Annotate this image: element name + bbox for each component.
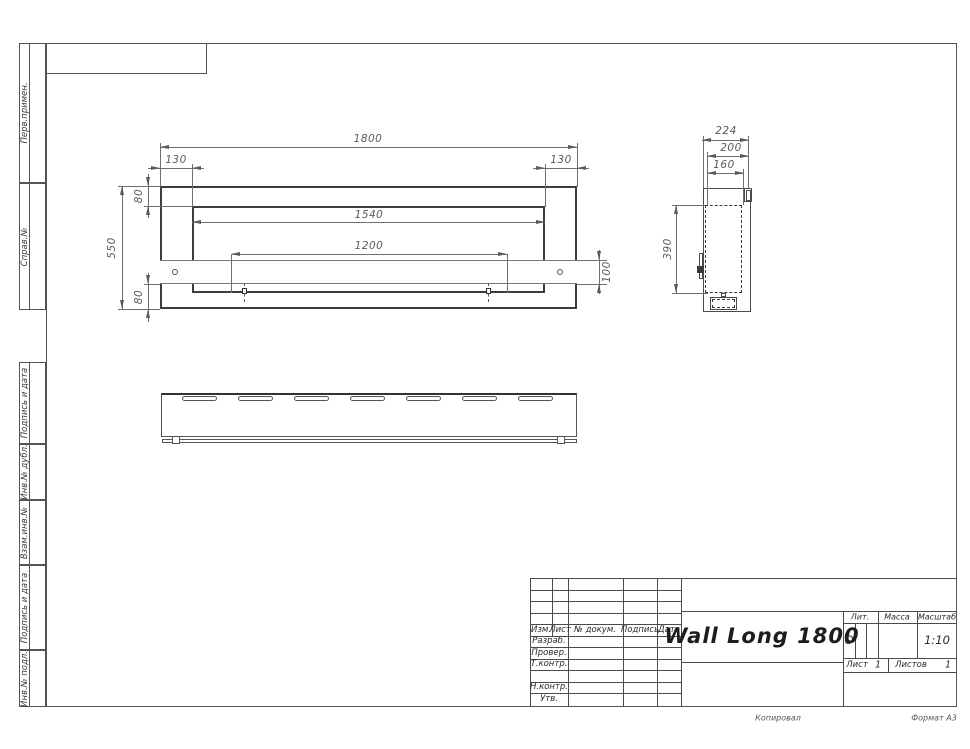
bottom-hole-left — [242, 288, 247, 294]
margin-box-sprav: Справ.№ — [19, 183, 46, 310]
dim-1540: 1540 — [355, 209, 384, 221]
dimension-arrowhead — [707, 171, 716, 175]
dimension-arrowhead — [536, 166, 545, 170]
side-view-top-bracket — [744, 188, 752, 202]
format-note: Формат А3 — [911, 714, 957, 723]
bottom-view-tab-right — [557, 436, 565, 444]
titleblock-line — [843, 672, 957, 673]
dimension-line — [748, 136, 749, 188]
dimension-arrowhead — [146, 177, 150, 186]
dimension-line — [231, 254, 507, 255]
titleblock-line — [843, 658, 957, 659]
dim-200: 200 — [720, 142, 742, 154]
titleblock-row-tkontr: Т.контр. — [531, 659, 568, 669]
side-view-bottom-box — [710, 297, 737, 310]
bottom-view-rail — [162, 439, 577, 443]
vent-slot-3 — [294, 396, 329, 401]
vent-slot-2 — [238, 396, 273, 401]
dimension-arrowhead — [674, 205, 678, 214]
dimension-line — [160, 143, 161, 187]
dim-1800: 1800 — [354, 133, 383, 145]
dim-224: 224 — [715, 125, 737, 137]
dimension-line — [118, 309, 160, 310]
dimension-arrowhead — [120, 300, 124, 309]
mount-hole-right — [557, 269, 563, 275]
titleblock-line — [530, 670, 681, 671]
mount-hole-left — [172, 269, 178, 275]
titleblock-line — [888, 658, 889, 672]
dim-130-left: 130 — [165, 154, 187, 166]
top-left-stamp-box — [46, 43, 207, 74]
dimension-line — [577, 284, 607, 285]
margin-label: Справ.№ — [20, 227, 30, 266]
titleblock-line — [681, 662, 843, 663]
margin-label: Подпись и дата — [20, 368, 30, 438]
dim-80-top: 80 — [133, 189, 145, 203]
margin-label: Взам.инв.№ — [20, 506, 30, 558]
titleblock-lit-value: О — [844, 633, 853, 647]
dimension-line — [672, 293, 708, 294]
dimension-arrowhead — [146, 275, 150, 284]
dimension-line — [707, 152, 708, 205]
bottom-hole-right — [486, 288, 491, 294]
dim-550: 550 — [106, 237, 118, 259]
dimension-arrowhead — [146, 206, 150, 215]
dimension-line — [703, 136, 704, 188]
titleblock-mass-label: Масса — [884, 613, 910, 622]
titleblock-line — [843, 623, 957, 624]
dimension-line — [545, 164, 546, 207]
titleblock-line — [568, 578, 569, 707]
dimension-line — [192, 164, 193, 207]
titleblock-sheets-label: Листов — [895, 660, 927, 670]
titleblock-line — [530, 578, 957, 579]
dimension-arrowhead — [577, 166, 586, 170]
dimension-arrowhead — [146, 309, 150, 318]
titleblock-lit-label: Лит. — [851, 613, 869, 622]
dimension-arrowhead — [231, 252, 240, 256]
dimension-line — [676, 205, 677, 293]
margin-box-vzam-inv: Взам.инв.№ — [19, 500, 46, 565]
vent-slot-4 — [350, 396, 385, 401]
dimension-line — [160, 147, 577, 148]
margin-box-inv-podl: Инв.№ подл. — [19, 650, 46, 707]
dimension-arrowhead — [192, 166, 201, 170]
dim-100: 100 — [601, 261, 613, 283]
side-view-top-bracket-inner — [746, 190, 751, 201]
titleblock-sheets-value: 1 — [945, 660, 951, 671]
titleblock-col-izm: Изм. — [531, 625, 551, 635]
side-view-notch — [721, 293, 726, 297]
dimension-arrowhead — [740, 138, 749, 142]
margin-label: Инв.№ подл. — [20, 651, 30, 707]
side-view-bottom-box-hidden — [712, 299, 735, 308]
vent-slot-1 — [182, 396, 217, 401]
margin-label: Инв.№ дубл. — [20, 444, 30, 499]
dimension-arrowhead — [192, 220, 201, 224]
drawing-sheet: Перв.примен. Справ.№ Подпись и дата Инв.… — [0, 0, 970, 749]
vent-slot-7 — [518, 396, 553, 401]
titleblock-line — [866, 623, 867, 658]
titleblock-scale-label: Масштаб — [918, 613, 956, 622]
dimension-line — [122, 186, 123, 310]
drawing-frame — [46, 43, 957, 707]
titleblock-row-nkontr: Н.контр. — [530, 682, 568, 692]
dim-80-bottom: 80 — [133, 290, 145, 304]
dimension-line — [231, 254, 232, 293]
dimension-arrowhead — [151, 166, 160, 170]
margin-label: Перв.примен. — [20, 82, 30, 143]
dimension-arrowhead — [702, 138, 711, 142]
drawing-title: Wall Long 1800 — [664, 624, 859, 648]
titleblock-scale-value: 1:10 — [924, 633, 950, 647]
margin-label: Подпись и дата — [20, 572, 30, 642]
titleblock-row-prover: Провер. — [531, 648, 566, 658]
bottom-view-tab-left — [172, 436, 180, 444]
dimension-arrowhead — [735, 171, 744, 175]
dimension-arrowhead — [498, 252, 507, 256]
side-view-hidden-chamber — [705, 205, 742, 293]
dimension-line — [192, 222, 545, 223]
dimension-arrowhead — [597, 251, 601, 260]
dimension-arrowhead — [120, 186, 124, 195]
dimension-line — [144, 284, 160, 285]
margin-box-perv-primen: Перв.примен. — [19, 43, 46, 183]
titleblock-sheet-value: 1 — [875, 660, 881, 671]
dimension-arrowhead — [707, 154, 716, 158]
titleblock-line — [623, 578, 624, 707]
dim-390: 390 — [662, 238, 674, 260]
margin-box-podpis-data-2: Подпись и дата — [19, 565, 46, 650]
dimension-arrowhead — [740, 154, 749, 158]
dimension-line — [118, 186, 160, 187]
front-view-mount-strip — [160, 260, 577, 284]
dimension-arrowhead — [597, 284, 601, 293]
vent-slot-6 — [462, 396, 497, 401]
dimension-arrowhead — [536, 220, 545, 224]
dim-160: 160 — [713, 159, 735, 171]
dimension-arrowhead — [674, 284, 678, 293]
titleblock-sheet-label: Лист — [846, 660, 868, 670]
titleblock-line — [657, 578, 658, 707]
side-view-wall-clip — [697, 266, 704, 273]
titleblock-col-doc: № докум. — [574, 625, 616, 635]
dim-1200: 1200 — [355, 240, 384, 252]
margin-box-inv-dubl: Инв.№ дубл. — [19, 444, 46, 500]
titleblock-row-razrab: Разраб. — [532, 636, 565, 646]
titleblock-line — [878, 611, 879, 658]
dimension-line — [144, 206, 192, 207]
dim-130-right: 130 — [550, 154, 572, 166]
dimension-arrowhead — [160, 145, 169, 149]
margin-box-podpis-data-1: Подпись и дата — [19, 362, 46, 444]
copied-note: Копировал — [755, 714, 801, 723]
dimension-arrowhead — [568, 145, 577, 149]
vent-slot-5 — [406, 396, 441, 401]
titleblock-col-sign: Подпись — [621, 625, 659, 635]
titleblock-col-list: Лист — [549, 625, 571, 635]
dimension-line — [507, 254, 508, 293]
titleblock-line — [681, 611, 957, 612]
titleblock-row-utv: Утв. — [540, 694, 558, 704]
